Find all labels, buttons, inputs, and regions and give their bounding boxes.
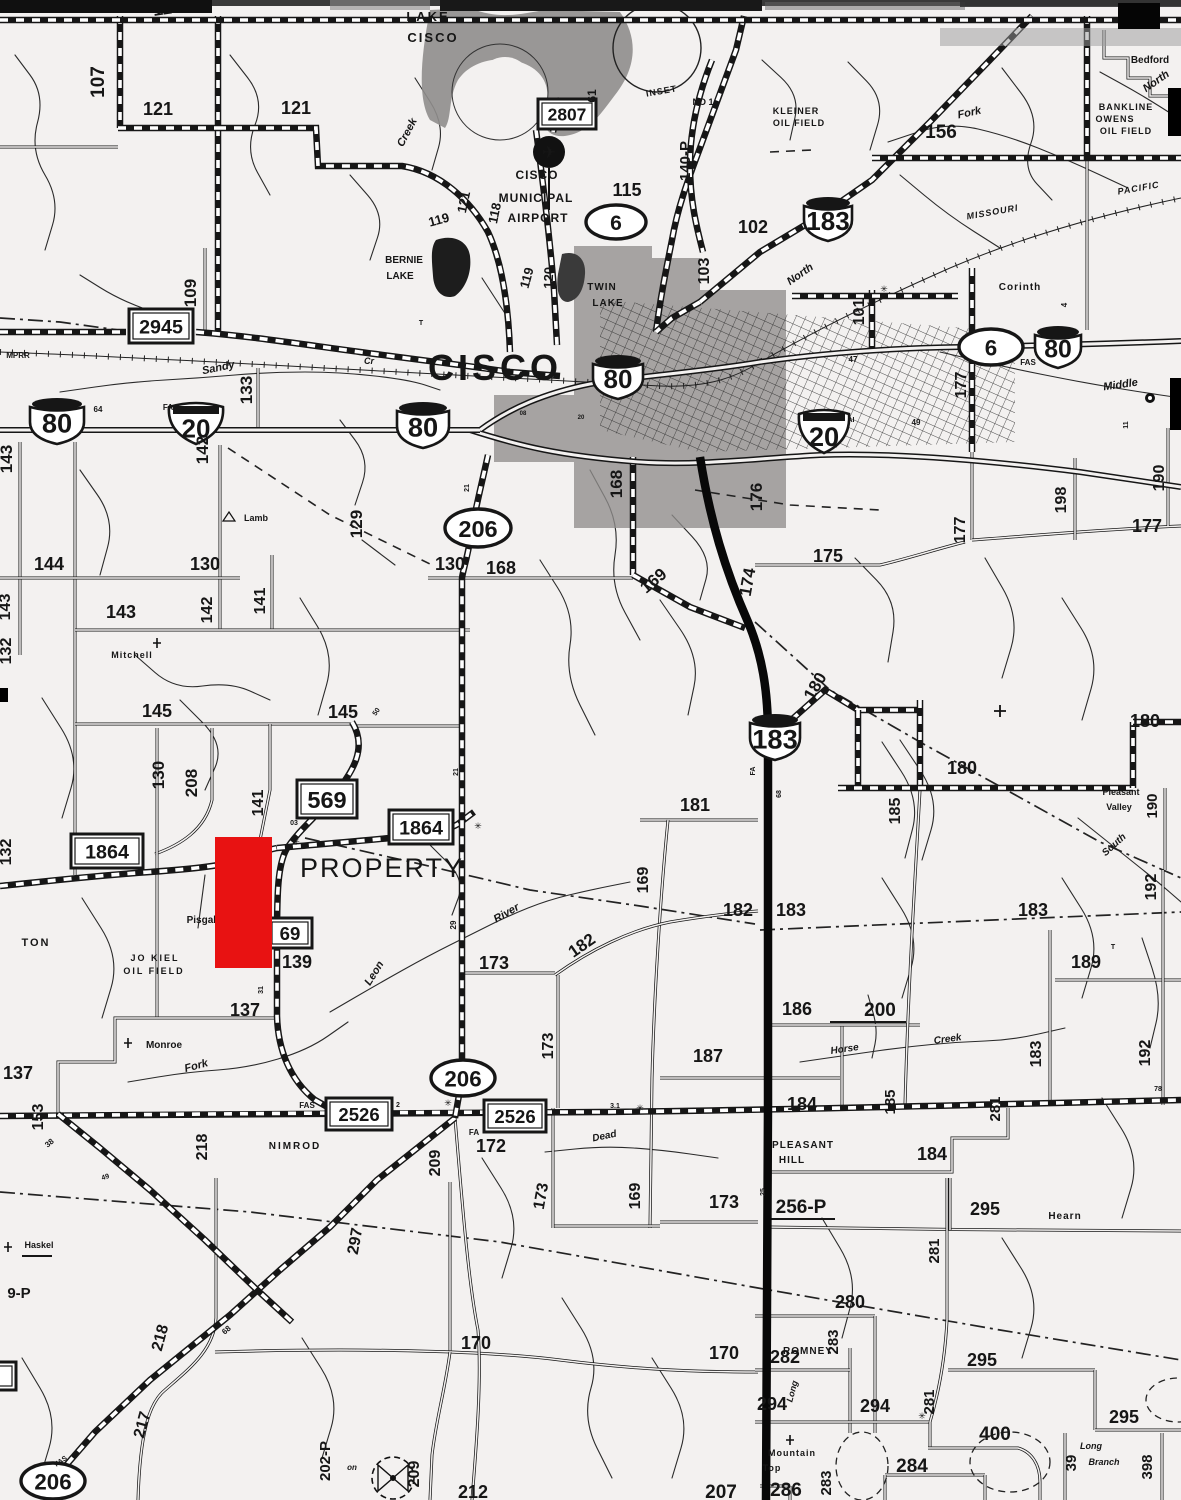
map-label: KLEINER [773,106,820,116]
map-label: Dead [591,1128,618,1144]
map-label: 207 [705,1482,737,1500]
map-label: 49 [912,418,921,427]
map-label: 03 [290,820,298,827]
map-label: 283 [818,1470,835,1495]
map-label: 137 [3,1063,33,1083]
map-label: 137 [230,1000,260,1020]
map-label: FAS [1020,358,1036,367]
map-label: 64 [94,405,103,414]
map-label: 47 [849,355,858,364]
map-label: 184 [917,1144,947,1164]
map-label: 115 [612,180,641,200]
map-label: 2 [396,1102,400,1109]
map-label: 169 [627,1183,644,1210]
map-label: OIL FIELD [1100,126,1152,136]
map-label: 281 [987,1096,1004,1121]
svg-text:80: 80 [408,411,438,442]
highway-shield-oval-6: 6 [586,205,646,239]
map-label: 31 [258,986,265,994]
property-label: PROPERTY [300,853,464,883]
map-label: LAKE [386,271,414,282]
map-label: 283 [825,1329,842,1354]
map-label: 200 [864,1000,896,1021]
map-label: 4 [1060,302,1069,307]
map-label: Creek [933,1032,962,1047]
map-label: 173 [540,1033,557,1060]
map-label: 3.1 [610,1103,620,1110]
map-label: 192 [1143,874,1160,901]
highway-shield-us-183: 183 [750,714,800,760]
map-label: 25 [760,1188,767,1196]
map-label: 172 [476,1136,506,1156]
highway-shield-fm-2526: 2526 [484,1100,546,1132]
svg-text:1864: 1864 [85,841,129,863]
map-label: 132 [0,638,15,665]
map-label: Top [763,1463,782,1473]
map-label: 400 [979,1424,1011,1445]
map-label: 177 [953,372,970,399]
map-label: 130 [149,761,168,789]
map-label: 168 [607,470,626,498]
map-label: 202-P [317,1441,334,1481]
map-label: INSET [645,83,678,98]
map-label: 107 [88,66,109,98]
map-label: 185 [887,798,904,825]
svg-text:2526: 2526 [338,1104,379,1125]
map-label: 217 [131,1410,154,1440]
svg-text:2526: 2526 [494,1106,535,1127]
map-label: TWIN [587,282,617,293]
highway-shield-us-80: 80 [30,398,84,444]
map-label: 49 [101,1173,111,1182]
highway-shield-us-80: 80 [593,355,643,399]
svg-text:✳: ✳ [292,837,300,847]
map-label: MUNICIPAL [499,191,574,205]
svg-text:2807: 2807 [548,105,587,125]
map-label: 198 [1053,487,1070,514]
road-network [0,16,1181,1500]
map-label: 21 [453,768,460,776]
svg-text:183: 183 [806,206,849,236]
map-label: 101 [851,299,868,326]
map-label: 295 [1109,1407,1139,1427]
map-label: Pisgah [187,915,220,926]
map-label: FAS [299,1101,315,1110]
map-label: LAKE [406,9,449,24]
map-label: OWENS [1095,114,1134,124]
svg-text:✈: ✈ [542,143,556,162]
map-label: BERNIE [385,255,423,266]
map-label: JO KIEL [130,953,179,963]
map-label: 169 [635,867,652,894]
map-label: 11 [1123,421,1130,429]
map-label: HILL [779,1155,805,1166]
map-label: 180 [1130,711,1160,731]
map-label: 38 [43,1136,56,1149]
map-label: CISCO [407,30,458,45]
map-label: 209 [406,1461,423,1488]
map-label: 180 [947,758,977,778]
map-label: MPRR [6,351,30,360]
map-label: 103 [696,258,713,285]
map-label: 109 [181,279,200,307]
bernie-lake [432,238,471,297]
map-label: 132 [0,839,15,866]
svg-text:✳: ✳ [474,821,482,831]
map-label: 208 [182,769,201,797]
map-label: Fork [956,105,983,122]
highway-shield-fm-2945: 2945 [129,309,193,343]
map-label: PACIFIC [1117,179,1160,196]
map-label: 130 [190,554,220,574]
map-label: Long [1080,1441,1102,1451]
map-label: 121 [143,99,173,119]
map-label: Pleasant [1102,787,1139,797]
map-label: 143 [106,602,136,622]
map-label: 9-P [7,1285,30,1302]
map-label: TON [21,937,50,949]
map-label: 144 [34,554,64,574]
map-label: 192 [1137,1040,1154,1067]
property-marker [215,837,272,968]
map-label: 183 [1028,1041,1045,1068]
svg-text:183: 183 [752,723,798,754]
map-label: 175 [813,546,843,566]
map-label: 121 [281,98,311,118]
svg-text:569: 569 [307,787,346,813]
map-label: 181 [680,795,710,815]
map-label: Cr [364,356,374,366]
map-label: 176 [747,483,766,511]
map-label: 120 [541,267,557,289]
map-label: 295 [967,1350,997,1370]
map-label: 280 [835,1292,865,1312]
svg-text:206: 206 [458,516,497,542]
svg-text:206: 206 [444,1066,481,1091]
map-label: 173 [709,1192,739,1212]
svg-text:80: 80 [42,407,72,438]
map-label: 145 [142,701,172,721]
map-label: 145 [328,702,358,722]
map-label: T [1111,944,1116,951]
svg-text:6: 6 [985,335,997,360]
map-label: 295 [970,1199,1000,1219]
map-label: 294 [860,1396,890,1416]
map-label: NIMROD [269,1141,322,1152]
highway-shield-oval-206: 206 [431,1060,495,1096]
map-label: 189 [1071,952,1101,972]
map-label: 20 [578,415,585,421]
map-label: LAKE [592,298,623,309]
map-label: 119 [427,210,451,230]
map-label: Haskel [24,1240,53,1250]
map-label: 119 [517,266,537,290]
map-label: 08 [520,411,527,417]
map-label: 61 [585,89,599,103]
map-label: Valley [1106,802,1132,812]
highway-shield-us-183: 183 [804,197,852,241]
map-label: 133 [237,376,256,404]
map-label: 143 [0,445,16,473]
map-label: 143 [0,594,14,621]
map-label: 183 [1018,900,1048,920]
map-label: 281 [926,1238,943,1263]
map-label: 218 [194,1134,211,1161]
map-label: OIL FIELD [773,118,825,128]
svg-text:1864: 1864 [399,817,443,839]
highway-shield-us-80: 80 [1035,326,1081,368]
map-label: 102 [738,217,768,237]
highway-shield-oval-6: 6 [959,329,1023,365]
map-label: CISCO [515,168,558,182]
map-label: 209 [427,1150,444,1177]
map-label: 29 [449,920,458,929]
map-label: 168 [486,558,516,578]
map-label: 142 [199,597,216,624]
highway-shield-fm-69: 69 [268,918,312,948]
svg-text:6: 6 [610,212,622,235]
map-label: on [347,1463,357,1472]
map-label: Hearn [1048,1211,1081,1222]
map-label: 140-P [677,141,694,181]
map-label: 182 [723,900,753,920]
map-label: 212 [458,1482,488,1500]
map-label: 170 [709,1343,739,1363]
svg-text:20: 20 [809,421,839,452]
map-label: MISSOURI [966,203,1019,222]
map-label: 173 [531,1182,552,1211]
highway-shield-fm-569: 569 [297,780,357,818]
map-label: 180 [800,669,831,703]
map-label: T [419,320,424,327]
map-label: 190 [1144,793,1161,818]
svg-text:69: 69 [280,923,301,944]
map-label: PLEASANT [772,1140,834,1151]
highway-shield-oval-206: 206 [21,1463,85,1499]
map-label: 187 [693,1046,723,1066]
map-label: Leon [362,959,386,988]
map-label: 170 [461,1333,491,1353]
map-label: 177 [952,517,969,544]
highway-shield-fm-1864: 1864 [389,810,453,844]
map-label: 141 [250,790,267,817]
svg-text:2945: 2945 [139,316,183,338]
map-label: 183 [776,900,806,920]
map-label: River [492,901,522,926]
map-label: 186 [782,999,812,1019]
map-label: 118 [485,201,504,225]
map-label: FA [163,403,173,412]
map-label: 294 [757,1394,787,1414]
map-label: FA [750,767,757,776]
map-label: 297 [345,1227,366,1256]
map-label: 50 [372,707,382,717]
map-label: NO 1 [692,97,713,107]
map-label: AI [848,417,855,424]
map-label: 177 [1132,516,1162,536]
map-label: 142 [193,436,212,464]
map-label: North [1141,68,1172,95]
map-label: Corinth [999,282,1042,293]
map-label: 256-P [776,1197,827,1218]
highway-shield-us-80: 80 [397,402,449,448]
map-label: 184 [787,1094,817,1114]
highway-shield-oval-206: 206 [445,509,511,547]
map-label: 129 [347,510,366,538]
map-label: 141 [252,588,269,615]
svg-text:206: 206 [34,1469,71,1494]
map-label: 286 [770,1480,802,1500]
map-label: 284 [896,1456,928,1477]
map-label: 398 [1139,1454,1156,1479]
map-label: 130 [435,554,465,574]
map-label: 68 [776,790,783,798]
highway-shield-fm-2526: 2526 [326,1098,392,1130]
map-label: Creek [395,115,420,148]
map-canvas: ✳✳✳✳✳✳✈ 28072945668018380208080202065691… [0,0,1181,1500]
map-label: 21 [464,484,471,492]
map-label: 190 [1151,465,1168,492]
map-label: 153 [30,1104,47,1131]
map-label: 182 [565,930,599,962]
map-label: Mountain [768,1448,816,1458]
map-label: AIRPORT [508,211,569,225]
map-label: 173 [479,953,509,973]
map-label: 281 [921,1389,938,1414]
map-label: Horse [830,1042,860,1057]
map-label: 139 [282,952,312,972]
map-label: 78 [1154,1086,1162,1093]
scanned-county-map: { "map": { "type": "scanned-county-road-… [0,0,1181,1500]
map-label: 185 [882,1089,899,1114]
map-label: Mitchell [111,650,153,660]
map-label: 218 [149,1323,172,1353]
svg-text:80: 80 [604,364,633,394]
map-label: OIL FIELD [123,966,184,976]
map-label: 39 [1063,1455,1080,1472]
highway-shield-fm-9: 9 [0,1362,16,1390]
svg-text:✳: ✳ [880,284,888,294]
map-label: 174 [736,566,760,598]
property-overlay: PROPERTY [215,837,464,968]
map-label: 156 [925,122,957,143]
map-label: North [785,261,816,288]
svg-text:✳: ✳ [636,1103,644,1113]
highway-shield-fm-1864: 1864 [71,834,143,868]
map-label: Bedford [1131,55,1169,66]
map-label: Monroe [146,1040,183,1051]
map-label: Branch [1088,1457,1120,1467]
map-label: Lamb [244,513,269,523]
svg-text:80: 80 [1044,336,1072,363]
svg-text:✳: ✳ [444,1098,452,1108]
map-label: CISCO [428,347,562,388]
map-label: BANKLINE [1099,102,1154,112]
